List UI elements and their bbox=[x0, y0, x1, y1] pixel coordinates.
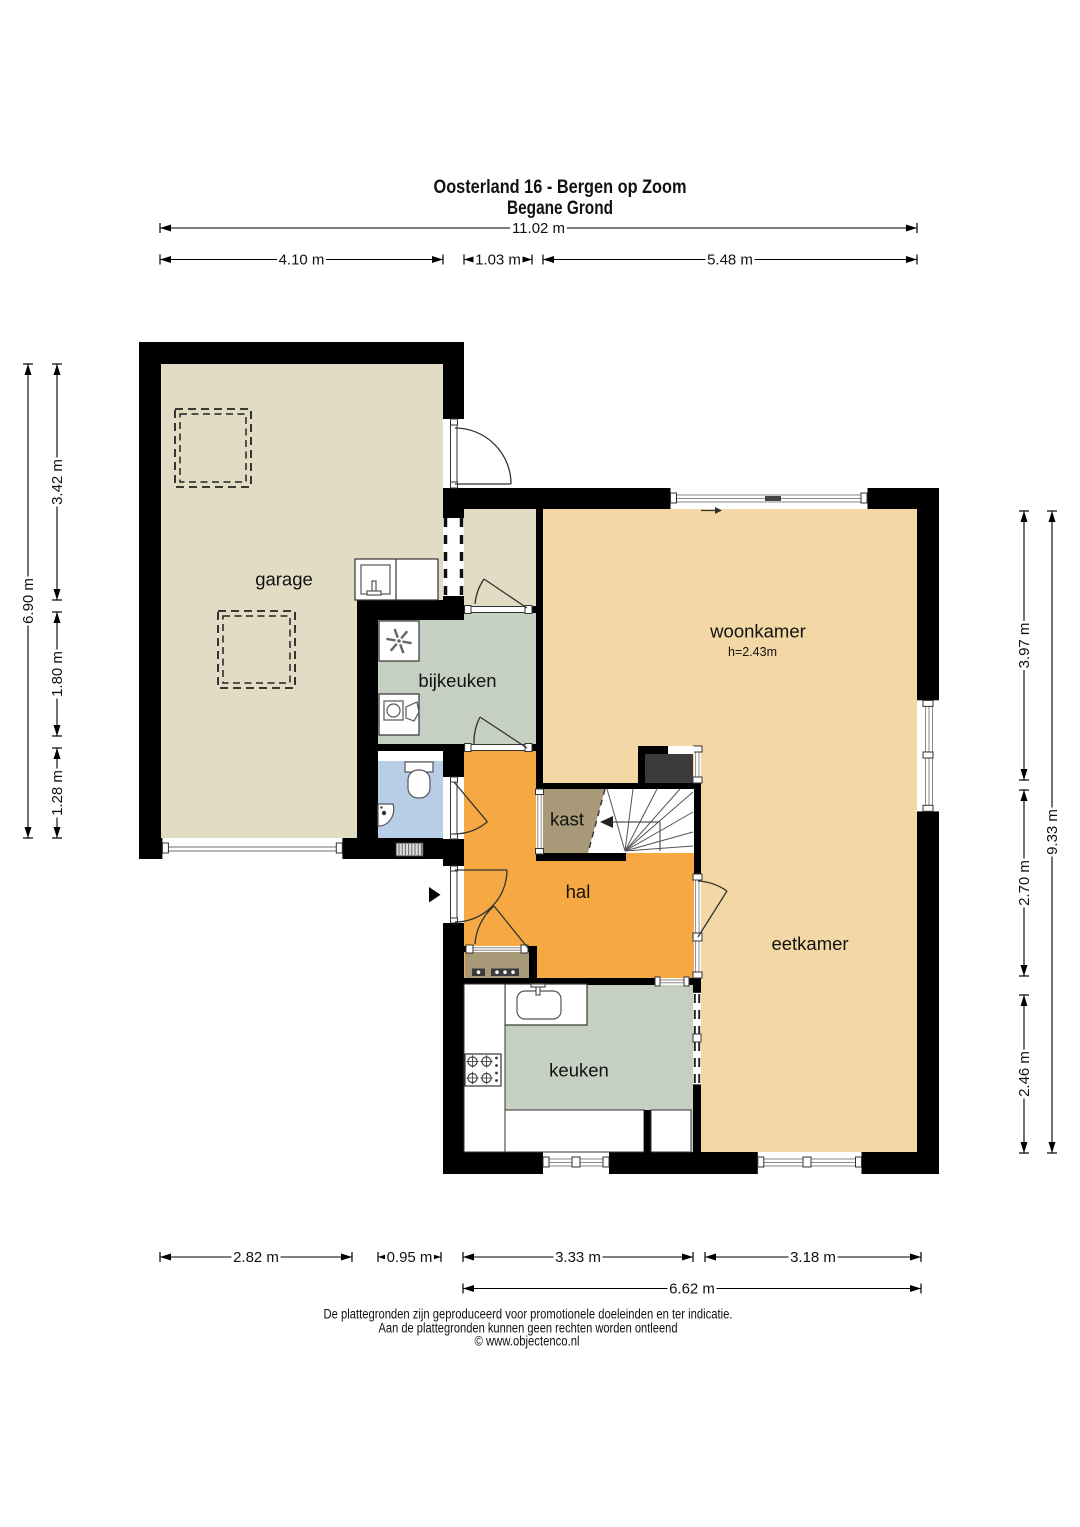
svg-text:6.62 m: 6.62 m bbox=[669, 1281, 715, 1298]
svg-text:3.97 m: 3.97 m bbox=[1016, 623, 1033, 669]
svg-text:2.46 m: 2.46 m bbox=[1016, 1051, 1033, 1097]
svg-text:kast: kast bbox=[550, 809, 584, 830]
svg-text:woonkamer: woonkamer bbox=[709, 621, 806, 642]
svg-text:bijkeuken: bijkeuken bbox=[418, 670, 496, 691]
svg-text:Oosterland 16 - Bergen op Zoom: Oosterland 16 - Bergen op Zoom bbox=[434, 177, 687, 198]
svg-text:1.80 m: 1.80 m bbox=[49, 651, 66, 697]
svg-text:2.70 m: 2.70 m bbox=[1016, 860, 1033, 906]
svg-text:2.82 m: 2.82 m bbox=[233, 1249, 279, 1266]
svg-text:1.28 m: 1.28 m bbox=[49, 770, 66, 816]
svg-text:eetkamer: eetkamer bbox=[771, 933, 848, 954]
svg-text:keuken: keuken bbox=[549, 1060, 609, 1081]
svg-text:© www.objectenco.nl: © www.objectenco.nl bbox=[475, 1334, 580, 1349]
svg-text:11.02 m: 11.02 m bbox=[512, 220, 565, 237]
svg-text:9.33 m: 9.33 m bbox=[1044, 809, 1061, 855]
svg-text:4.10 m: 4.10 m bbox=[279, 252, 325, 269]
svg-text:3.18 m: 3.18 m bbox=[790, 1249, 836, 1266]
svg-text:5.48 m: 5.48 m bbox=[707, 252, 753, 269]
svg-text:h=2.43m: h=2.43m bbox=[728, 645, 777, 659]
svg-text:6.90 m: 6.90 m bbox=[20, 578, 37, 624]
svg-text:1.03 m: 1.03 m bbox=[475, 252, 521, 269]
svg-text:garage: garage bbox=[255, 569, 313, 590]
svg-text:0.95 m: 0.95 m bbox=[387, 1249, 433, 1266]
svg-text:Begane Grond: Begane Grond bbox=[507, 198, 613, 219]
svg-text:3.33 m: 3.33 m bbox=[555, 1249, 601, 1266]
svg-text:3.42 m: 3.42 m bbox=[49, 459, 66, 505]
svg-text:hal: hal bbox=[566, 881, 591, 902]
svg-text:De plattegronden zijn geproduc: De plattegronden zijn geproduceerd voor … bbox=[324, 1307, 733, 1322]
